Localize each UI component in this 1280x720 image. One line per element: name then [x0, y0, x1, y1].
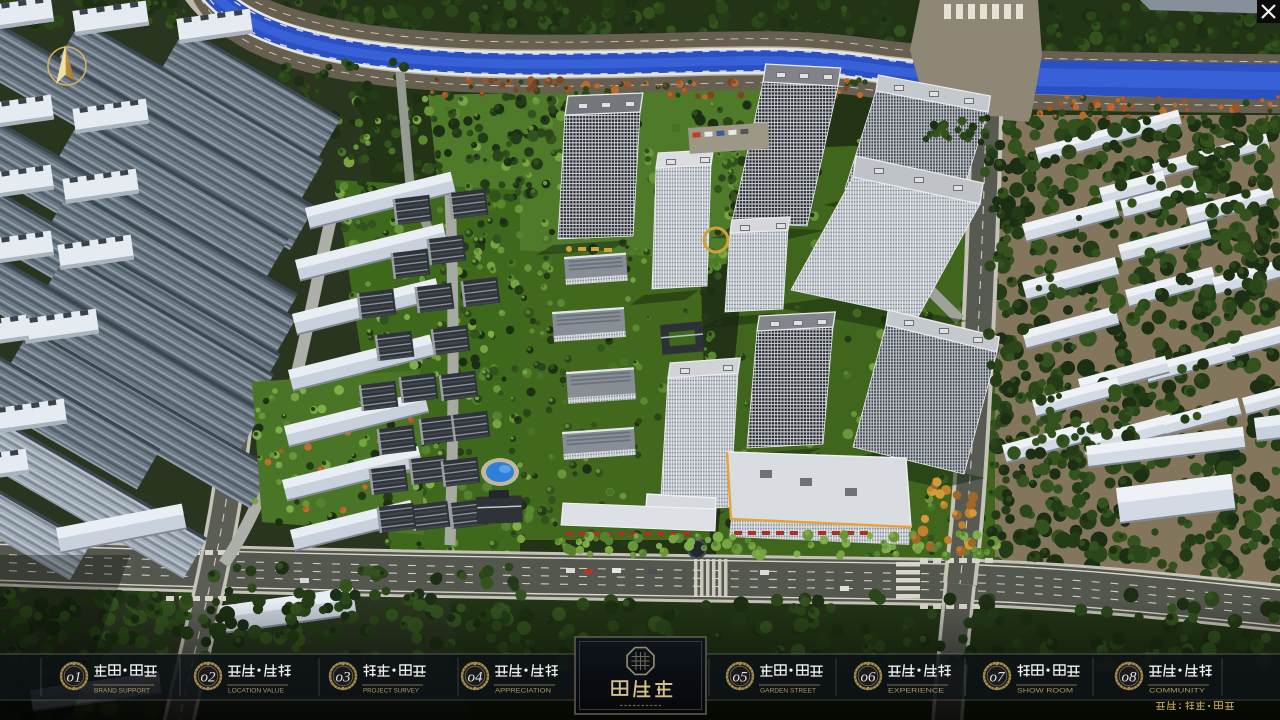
svg-text:o4: o4	[468, 670, 484, 686]
svg-text:LOCATION VALUE: LOCATION VALUE	[228, 689, 284, 695]
svg-text:EXPERIENCE: EXPERIENCE	[888, 689, 944, 695]
svg-text:o1: o1	[67, 670, 82, 686]
svg-text:o2: o2	[201, 670, 217, 686]
svg-text:PROJECT SURVEY: PROJECT SURVEY	[363, 689, 419, 695]
svg-text:COMMUNITY: COMMUNITY	[1149, 689, 1205, 695]
svg-text:o7: o7	[990, 670, 1007, 686]
svg-text:SHOW ROOM: SHOW ROOM	[1017, 689, 1073, 695]
svg-text:BRAND SUPPORT: BRAND SUPPORT	[94, 689, 150, 695]
svg-text:o5: o5	[733, 670, 749, 686]
svg-text:o6: o6	[861, 670, 877, 686]
svg-text:GARDEN STREET: GARDEN STREET	[760, 689, 816, 695]
svg-text:o8: o8	[1122, 670, 1138, 686]
svg-text:o3: o3	[336, 670, 351, 686]
svg-text:APPRECIATION: APPRECIATION	[495, 689, 551, 695]
